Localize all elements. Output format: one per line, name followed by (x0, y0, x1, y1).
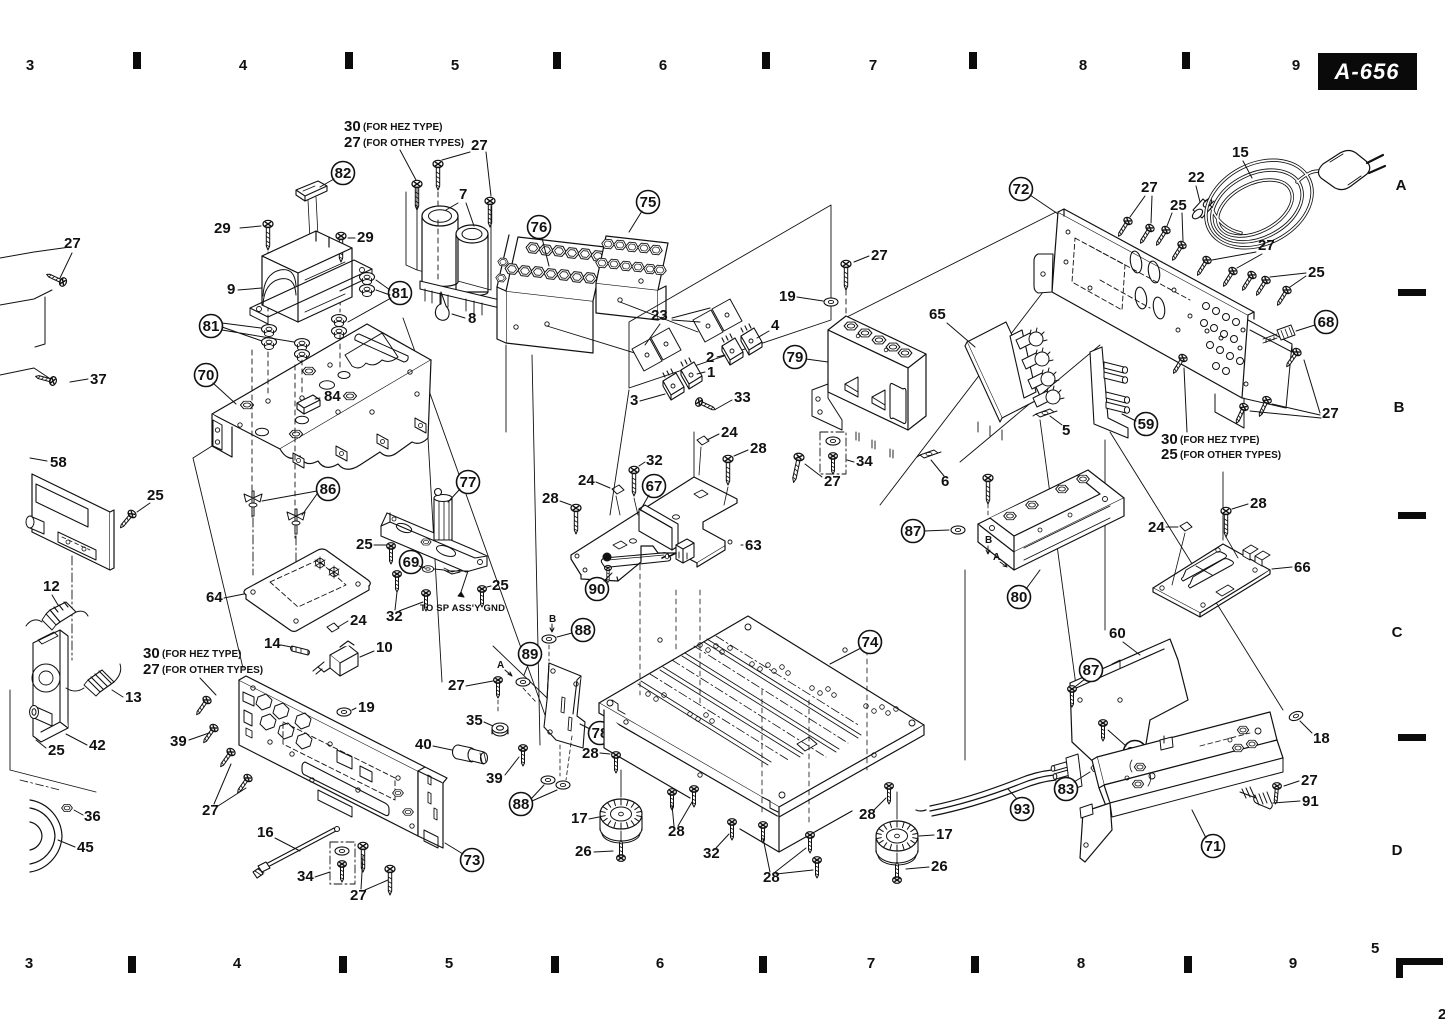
svg-text:30: 30 (344, 118, 361, 135)
svg-text:(FOR HEZ TYPE): (FOR HEZ TYPE) (1180, 435, 1259, 446)
svg-text:14: 14 (264, 635, 281, 652)
svg-text:4: 4 (233, 955, 242, 972)
svg-text:88: 88 (513, 796, 530, 813)
svg-text:35: 35 (466, 712, 483, 729)
svg-text:A-656: A-656 (1334, 59, 1400, 84)
svg-text:32: 32 (703, 845, 720, 862)
svg-text:24: 24 (578, 472, 595, 489)
svg-text:B: B (985, 535, 992, 546)
svg-text:8: 8 (1079, 57, 1087, 74)
svg-text:(FOR OTHER TYPES): (FOR OTHER TYPES) (162, 665, 263, 676)
svg-text:70: 70 (198, 367, 215, 384)
svg-text:19: 19 (358, 699, 375, 716)
svg-text:81: 81 (392, 285, 409, 302)
svg-text:90: 90 (589, 581, 606, 598)
svg-text:28: 28 (1250, 495, 1267, 512)
svg-text:27: 27 (1322, 405, 1339, 422)
svg-text:87: 87 (1083, 662, 1100, 679)
svg-text:34: 34 (856, 453, 873, 470)
svg-text:75: 75 (640, 194, 657, 211)
svg-text:28: 28 (859, 806, 876, 823)
svg-text:A: A (497, 660, 504, 671)
svg-text:25: 25 (356, 536, 373, 553)
svg-text:34: 34 (297, 868, 314, 885)
svg-text:15: 15 (1232, 144, 1249, 161)
svg-text:28: 28 (582, 745, 599, 762)
svg-text:24: 24 (350, 612, 367, 629)
svg-text:25: 25 (1161, 446, 1178, 463)
svg-text:71: 71 (1205, 838, 1222, 855)
svg-text:72: 72 (1013, 181, 1030, 198)
svg-text:88: 88 (575, 622, 592, 639)
svg-text:27: 27 (448, 677, 465, 694)
svg-text:36: 36 (84, 808, 101, 825)
svg-text:(FOR HEZ TYPE): (FOR HEZ TYPE) (363, 122, 442, 133)
svg-text:63: 63 (745, 537, 762, 554)
svg-text:7: 7 (459, 186, 467, 203)
svg-text:4: 4 (239, 57, 248, 74)
svg-text:10: 10 (376, 639, 393, 656)
svg-text:27: 27 (143, 661, 160, 678)
svg-text:4: 4 (771, 317, 780, 334)
svg-text:5: 5 (451, 57, 459, 74)
svg-text:27: 27 (344, 134, 361, 151)
svg-text:16: 16 (257, 824, 274, 841)
svg-text:28: 28 (668, 823, 685, 840)
svg-text:2: 2 (706, 349, 714, 366)
svg-text:9: 9 (1292, 57, 1300, 74)
svg-text:25: 25 (1308, 264, 1325, 281)
svg-text:59: 59 (1138, 416, 1155, 433)
svg-text:6: 6 (659, 57, 667, 74)
svg-text:(FOR HEZ TYPE): (FOR HEZ TYPE) (162, 649, 241, 660)
svg-text:73: 73 (464, 852, 481, 869)
svg-text:68: 68 (1318, 314, 1335, 331)
svg-text:28: 28 (542, 490, 559, 507)
svg-text:45: 45 (77, 839, 94, 856)
svg-text:9: 9 (227, 281, 235, 298)
svg-text:(FOR OTHER TYPES): (FOR OTHER TYPES) (363, 138, 464, 149)
svg-text:30: 30 (143, 645, 160, 662)
svg-text:5: 5 (1062, 422, 1070, 439)
svg-text:C: C (1392, 624, 1403, 641)
svg-text:66: 66 (1294, 559, 1311, 576)
svg-text:23: 23 (651, 307, 668, 324)
svg-text:32: 32 (646, 452, 663, 469)
svg-text:28: 28 (763, 869, 780, 886)
svg-text:6: 6 (656, 955, 664, 972)
svg-text:77: 77 (460, 474, 477, 491)
svg-text:27: 27 (1141, 179, 1158, 196)
svg-text:27: 27 (1258, 237, 1275, 254)
svg-text:1: 1 (707, 364, 715, 381)
svg-text:25: 25 (48, 742, 65, 759)
svg-text:74: 74 (862, 634, 879, 651)
svg-text:79: 79 (787, 349, 804, 366)
svg-text:42: 42 (89, 737, 106, 754)
svg-text:8: 8 (1077, 955, 1085, 972)
svg-text:25: 25 (1170, 197, 1187, 214)
svg-text:D: D (1392, 842, 1403, 859)
svg-text:29: 29 (214, 220, 231, 237)
svg-text:6: 6 (941, 473, 949, 490)
svg-text:B: B (549, 614, 556, 625)
svg-text:13: 13 (125, 689, 142, 706)
svg-text:58: 58 (50, 454, 67, 471)
svg-text:69: 69 (403, 554, 420, 571)
svg-text:65: 65 (929, 306, 946, 323)
svg-text:24: 24 (721, 424, 738, 441)
svg-text:5: 5 (1371, 940, 1379, 957)
svg-text:81: 81 (203, 318, 220, 335)
svg-text:87: 87 (905, 523, 922, 540)
svg-text:80: 80 (1011, 589, 1028, 606)
svg-text:86: 86 (320, 481, 337, 498)
svg-text:84: 84 (324, 388, 341, 405)
svg-text:64: 64 (206, 589, 223, 606)
svg-text:(FOR OTHER TYPES): (FOR OTHER TYPES) (1180, 450, 1281, 461)
svg-text:3: 3 (25, 955, 33, 972)
svg-text:TO SP ASS'Y GND: TO SP ASS'Y GND (420, 603, 505, 614)
svg-text:A: A (993, 552, 1000, 563)
svg-text:17: 17 (936, 826, 953, 843)
svg-text:B: B (1394, 399, 1405, 416)
svg-text:29: 29 (357, 229, 374, 246)
svg-text:91: 91 (1302, 793, 1319, 810)
svg-text:26: 26 (575, 843, 592, 860)
svg-text:19: 19 (779, 288, 796, 305)
svg-text:25: 25 (147, 487, 164, 504)
svg-text:26: 26 (931, 858, 948, 875)
svg-text:22: 22 (1188, 169, 1205, 186)
svg-text:39: 39 (170, 733, 187, 750)
svg-text:27: 27 (350, 887, 367, 904)
svg-text:25: 25 (492, 577, 509, 594)
svg-text:7: 7 (869, 57, 877, 74)
svg-text:76: 76 (531, 219, 548, 236)
svg-text:9: 9 (1289, 955, 1297, 972)
svg-text:83: 83 (1058, 781, 1075, 798)
svg-text:A: A (1396, 177, 1407, 194)
svg-text:7: 7 (867, 955, 875, 972)
svg-text:28: 28 (750, 440, 767, 457)
svg-text:27: 27 (824, 473, 841, 490)
svg-text:2: 2 (1438, 1006, 1445, 1021)
svg-text:39: 39 (486, 770, 503, 787)
svg-text:27: 27 (1301, 772, 1318, 789)
svg-text:3: 3 (630, 392, 638, 409)
svg-text:24: 24 (1148, 519, 1165, 536)
svg-text:93: 93 (1014, 801, 1031, 818)
svg-text:17: 17 (571, 810, 588, 827)
svg-text:27: 27 (871, 247, 888, 264)
svg-text:27: 27 (202, 802, 219, 819)
svg-text:60: 60 (1109, 625, 1126, 642)
svg-text:67: 67 (646, 478, 663, 495)
svg-text:33: 33 (734, 389, 751, 406)
svg-text:12: 12 (43, 578, 60, 595)
svg-text:27: 27 (471, 137, 488, 154)
svg-text:37: 37 (90, 371, 107, 388)
svg-text:18: 18 (1313, 730, 1330, 747)
svg-text:27: 27 (64, 235, 81, 252)
svg-text:89: 89 (522, 646, 539, 663)
svg-text:3: 3 (26, 57, 34, 74)
svg-text:8: 8 (468, 310, 476, 327)
svg-text:82: 82 (335, 165, 352, 182)
svg-text:40: 40 (415, 736, 432, 753)
svg-text:5: 5 (445, 955, 453, 972)
